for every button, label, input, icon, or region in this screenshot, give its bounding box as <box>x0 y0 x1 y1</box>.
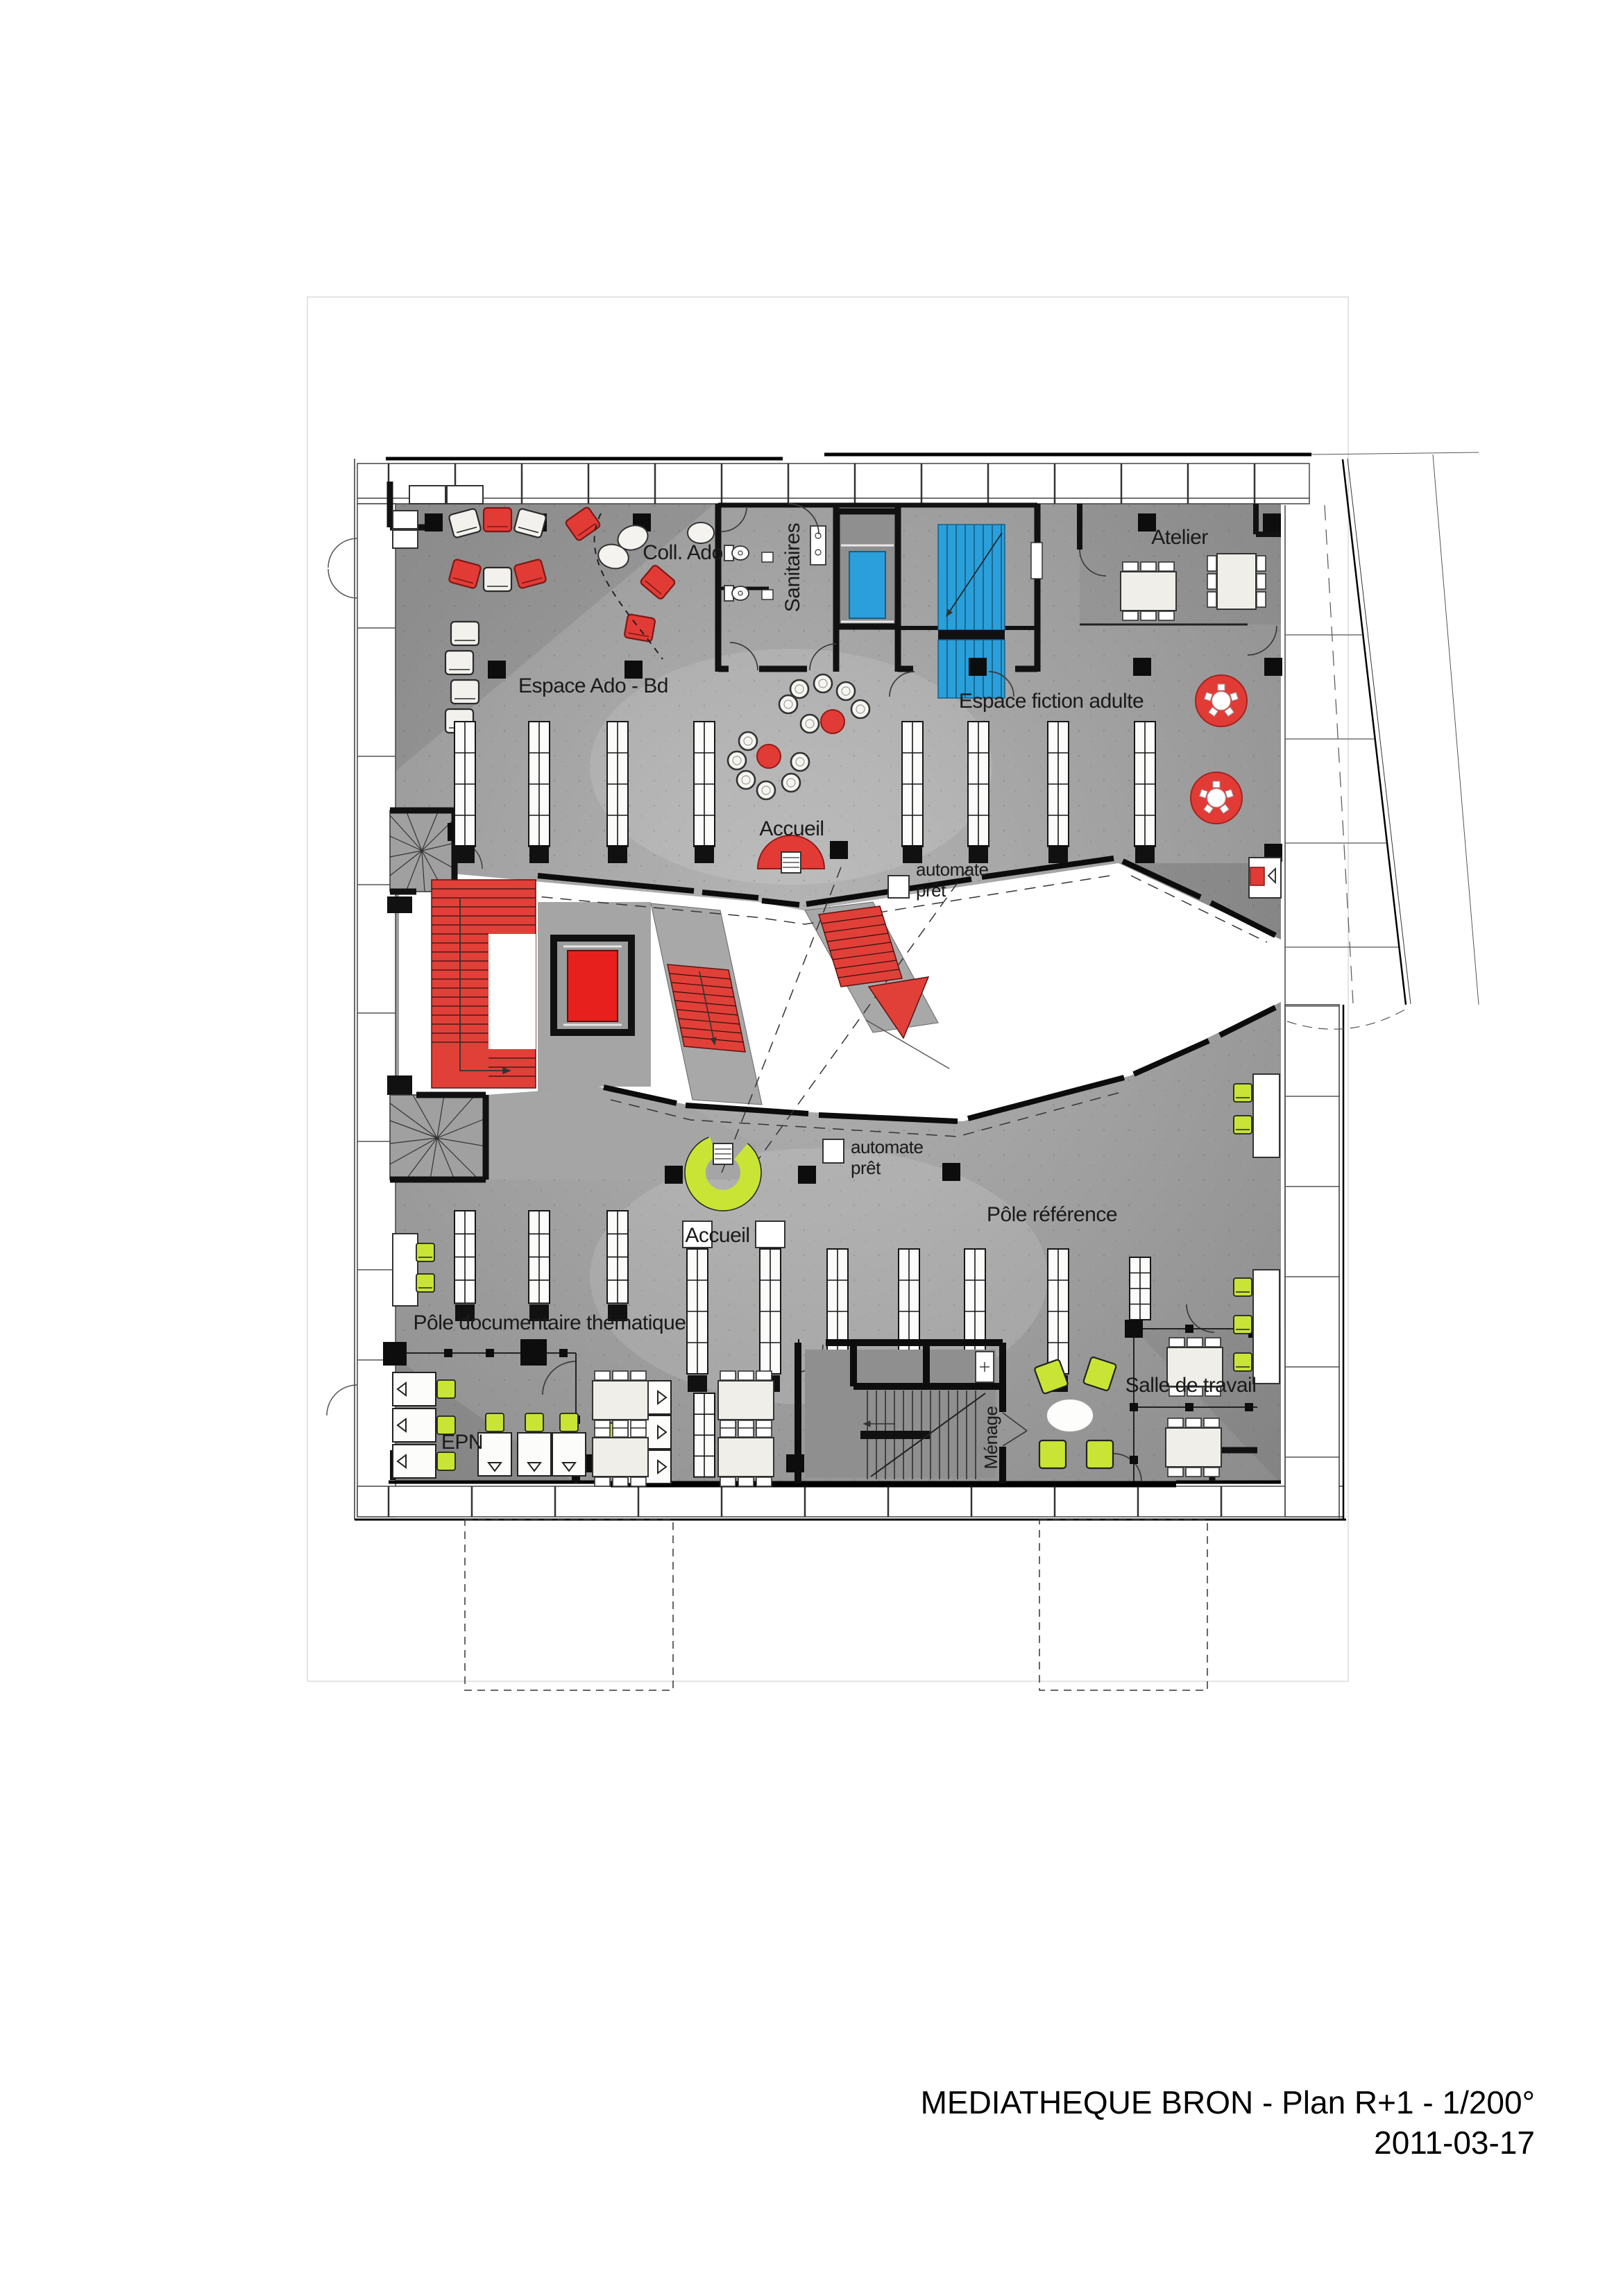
label-pole-reference: Pôle référence <box>987 1203 1117 1226</box>
label-accueil-upper: Accueil <box>759 817 824 840</box>
plan-sheet: Coll. Ado Sanitaires Atelier Espace Ado … <box>0 0 1623 2296</box>
elevator-blue <box>837 511 898 627</box>
automate-pret-upper-machine <box>888 876 909 898</box>
elevator-red <box>554 938 631 1032</box>
stair-main-red <box>432 880 536 1088</box>
label-automate-pret-lower-2: prêt <box>851 1157 881 1178</box>
label-automate-pret-upper-1: automate <box>916 859 988 880</box>
south-canopies <box>465 1520 1207 1690</box>
wall-chunk <box>387 896 412 913</box>
fiction-east-carrel <box>1249 858 1281 898</box>
label-pole-documentaire: Pôle documentaire thématique <box>414 1311 686 1334</box>
east-facade <box>1285 505 1343 1520</box>
label-espace-fiction-adulte: Espace fiction adulte <box>959 690 1144 713</box>
label-automate-pret-lower-1: automate <box>851 1137 923 1157</box>
bridge-stair-b <box>819 906 949 1069</box>
automate-pret-lower-machine <box>823 1139 844 1163</box>
sheet-date: 2011-03-17 <box>1374 2125 1535 2161</box>
south-facade <box>355 1482 1346 1520</box>
label-accueil-lower: Accueil <box>685 1224 749 1247</box>
north-facade <box>357 454 1311 504</box>
label-sanitaires: Sanitaires <box>781 523 804 612</box>
floor-plan-drawing: Coll. Ado Sanitaires Atelier Espace Ado … <box>0 0 1623 2296</box>
wall-chunk <box>387 1075 412 1095</box>
terrace-east <box>1285 505 1398 1005</box>
label-espace-ado-bd: Espace Ado - Bd <box>518 674 668 697</box>
label-automate-pret-upper-2: prêt <box>916 880 946 901</box>
label-atelier: Atelier <box>1151 526 1208 549</box>
site-boundary <box>1287 452 1479 1029</box>
label-epn: EPN <box>441 1431 483 1454</box>
spiral-stair-lower <box>390 1095 486 1180</box>
label-menage: Ménage <box>980 1406 1001 1469</box>
sheet-title: MEDIATHEQUE BRON - Plan R+1 - 1/200° <box>921 2084 1535 2120</box>
label-salle-de-travail: Salle de travail <box>1125 1374 1257 1397</box>
menage-stair <box>798 1343 1003 1483</box>
title-block: MEDIATHEQUE BRON - Plan R+1 - 1/200° 201… <box>921 2084 1535 2161</box>
label-coll-ado: Coll. Ado <box>643 541 723 564</box>
